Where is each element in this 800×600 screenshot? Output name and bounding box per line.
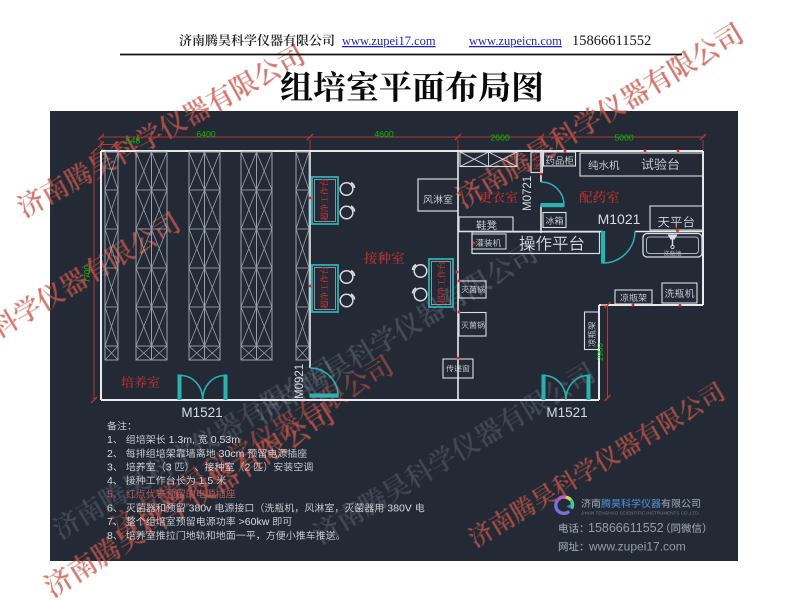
- svg-text:5000: 5000: [614, 133, 633, 143]
- svg-text:2600: 2600: [490, 133, 509, 143]
- svg-text:www.zupei17.com: www.zupei17.com: [342, 34, 436, 48]
- svg-text:548: 548: [126, 136, 141, 146]
- svg-text:2: 2: [245, 462, 254, 474]
- svg-text:6400: 6400: [196, 129, 215, 139]
- svg-text:4: 4: [107, 475, 113, 487]
- svg-text:M1521: M1521: [181, 405, 222, 420]
- svg-text:JINAN TENGHAO SCIENTIFIC INSTR: JINAN TENGHAO SCIENTIFIC INSTRUMENTS CO.…: [581, 511, 700, 516]
- svg-text:M1021: M1021: [598, 211, 641, 227]
- svg-text:7: 7: [107, 516, 113, 528]
- svg-text:7700: 7700: [83, 265, 92, 283]
- svg-text:4600: 4600: [374, 129, 393, 139]
- svg-text:380V: 380V: [384, 503, 414, 515]
- svg-text:M0921: M0921: [294, 364, 306, 399]
- svg-text:8: 8: [107, 530, 113, 542]
- svg-text:1: 1: [107, 434, 113, 446]
- svg-text:380v: 380v: [186, 503, 215, 515]
- svg-text:0.53m: 0.53m: [208, 434, 240, 446]
- svg-text:2: 2: [107, 448, 113, 460]
- svg-text:www.zupeicn.com: www.zupeicn.com: [469, 34, 562, 48]
- svg-text:M1521: M1521: [546, 405, 587, 420]
- svg-text:30cm: 30cm: [216, 448, 248, 460]
- svg-text:6: 6: [107, 503, 113, 515]
- svg-text:2900: 2900: [596, 343, 605, 361]
- svg-text:15866611552: 15866611552: [572, 33, 651, 49]
- svg-text:1.3m,: 1.3m,: [166, 434, 198, 446]
- svg-text:1.5: 1.5: [196, 475, 216, 487]
- svg-text:15866611552: 15866611552: [588, 521, 664, 535]
- svg-text:www.zupei17.com: www.zupei17.com: [588, 540, 686, 554]
- svg-text:3: 3: [166, 462, 175, 474]
- svg-text:>60kw: >60kw: [236, 516, 272, 528]
- svg-text:3: 3: [107, 462, 113, 474]
- svg-text:M0721: M0721: [522, 176, 534, 211]
- svg-text:5: 5: [107, 489, 113, 501]
